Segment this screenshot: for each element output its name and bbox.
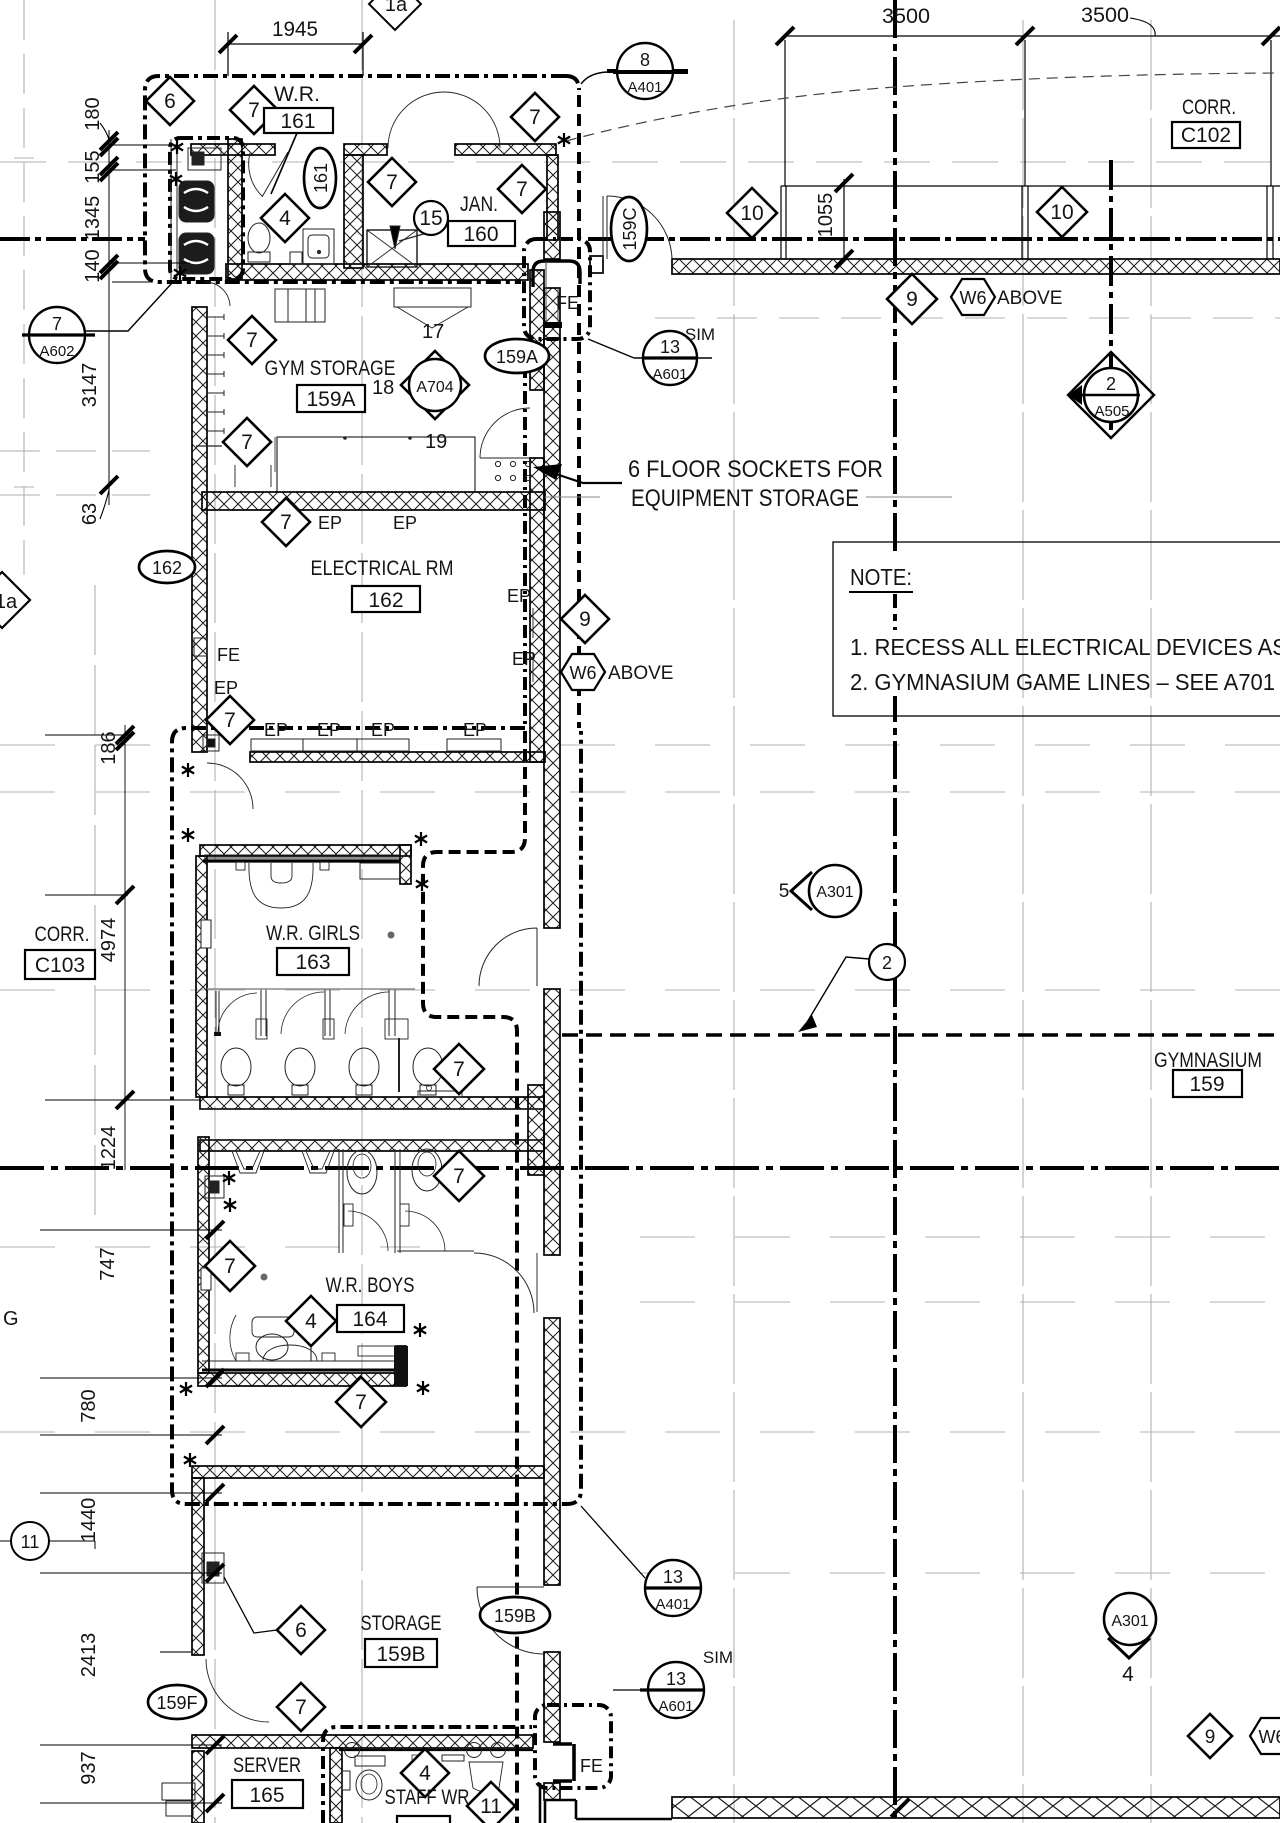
svg-text:7: 7 [248,99,260,122]
svg-text:63: 63 [79,503,101,525]
svg-text:13: 13 [666,1669,686,1689]
svg-text:CORR.: CORR. [35,923,90,946]
svg-text:159A: 159A [306,388,355,411]
svg-text:186: 186 [98,731,120,764]
svg-text:1945: 1945 [272,18,318,41]
svg-text:CORR.: CORR. [1182,96,1236,119]
svg-text:937: 937 [78,1751,100,1784]
svg-text:JAN.: JAN. [460,193,498,216]
svg-text:C102: C102 [1181,124,1231,147]
svg-text:7: 7 [295,1696,307,1719]
svg-text:3500: 3500 [1081,4,1129,27]
svg-text:13: 13 [660,337,680,357]
svg-text:W.R. BOYS: W.R. BOYS [326,1274,415,1297]
svg-text:9: 9 [906,288,918,311]
svg-text:EP: EP [371,720,395,740]
svg-text:2: 2 [882,953,892,973]
svg-text:164: 164 [352,1308,387,1331]
svg-text:W6: W6 [570,663,597,683]
svg-text:180: 180 [82,97,104,130]
svg-text:7: 7 [280,511,292,534]
svg-text:C103: C103 [35,954,85,977]
svg-text:8: 8 [640,50,650,70]
svg-text:EP: EP [512,649,536,669]
svg-text:7: 7 [453,1165,465,1188]
svg-text:SIM: SIM [685,325,715,344]
svg-text:EP: EP [393,513,417,533]
svg-text:6 FLOOR SOCKETS FOR: 6 FLOOR SOCKETS FOR [628,456,883,483]
svg-text:FE: FE [217,645,240,665]
svg-text:SERVER: SERVER [233,1754,301,1777]
svg-text:EP: EP [317,720,341,740]
svg-text:W.R. GIRLS: W.R. GIRLS [266,922,360,945]
svg-text:EP: EP [264,720,288,740]
svg-text:9: 9 [1205,1727,1216,1748]
svg-text:7: 7 [246,329,258,352]
svg-text:7: 7 [453,1058,465,1081]
svg-text:A301: A301 [816,884,853,901]
svg-text:W6: W6 [960,288,987,308]
svg-text:1a: 1a [385,0,408,16]
svg-text:163: 163 [295,951,330,974]
svg-text:1. RECESS ALL ELECTRICAL DEVIC: 1. RECESS ALL ELECTRICAL DEVICES AS [850,634,1280,660]
svg-text:7: 7 [516,178,528,201]
svg-text:13: 13 [663,1567,683,1587]
svg-text:18: 18 [372,377,394,399]
svg-text:6: 6 [295,1619,307,1642]
svg-text:1055: 1055 [815,193,837,238]
svg-text:160: 160 [463,223,498,246]
svg-text:FE: FE [556,293,579,313]
svg-text:7: 7 [52,314,62,334]
svg-text:5: 5 [779,881,790,902]
svg-text:ABOVE: ABOVE [997,288,1062,309]
svg-text:3500: 3500 [882,5,930,28]
svg-text:159F: 159F [156,1693,197,1713]
svg-text:A401: A401 [655,1596,690,1613]
svg-text:747: 747 [97,1247,119,1280]
svg-text:4: 4 [419,1762,431,1785]
svg-text:STAFF WR: STAFF WR [385,1786,470,1809]
svg-text:W6: W6 [1259,1727,1280,1747]
svg-text:162: 162 [368,589,403,612]
svg-text:159B: 159B [376,1643,425,1666]
svg-text:11: 11 [480,1795,502,1818]
svg-text:6: 6 [164,90,176,113]
svg-text:159A: 159A [496,347,538,367]
svg-text:4974: 4974 [98,918,120,963]
svg-text:140: 140 [82,249,104,282]
svg-text:EQUIPMENT STORAGE: EQUIPMENT STORAGE [631,485,859,512]
svg-text:1345: 1345 [82,196,104,241]
svg-text:159: 159 [1189,1073,1224,1096]
svg-text:STORAGE: STORAGE [361,1612,442,1635]
svg-text:7: 7 [355,1391,367,1414]
svg-text:7: 7 [224,709,236,732]
svg-text:GYMNASIUM: GYMNASIUM [1154,1049,1262,1072]
svg-text:161: 161 [280,110,315,133]
svg-text:ELECTRICAL RM: ELECTRICAL RM [311,557,454,580]
svg-text:FE: FE [580,1756,603,1776]
svg-text:NOTE:: NOTE: [850,564,912,590]
svg-text:1a: 1a [0,591,18,613]
svg-text:4: 4 [305,1310,317,1333]
svg-text:159C: 159C [620,207,640,250]
svg-text:161: 161 [311,163,331,193]
svg-text:SIM: SIM [703,1648,733,1667]
svg-text:9: 9 [579,608,591,631]
svg-text:1224: 1224 [98,1126,120,1171]
svg-text:A602: A602 [39,343,74,360]
svg-text:19: 19 [425,431,447,453]
svg-text:EP: EP [507,586,531,606]
svg-text:G: G [3,1308,19,1330]
svg-text:10: 10 [1050,201,1073,224]
svg-text:3147: 3147 [79,363,101,408]
svg-text:165: 165 [249,1784,284,1807]
svg-text:A301: A301 [1111,1613,1148,1630]
svg-text:A401: A401 [627,79,662,96]
svg-text:7: 7 [241,431,253,454]
svg-text:11: 11 [21,1532,40,1552]
svg-text:W.R.: W.R. [274,83,320,106]
svg-text:2413: 2413 [78,1633,100,1678]
svg-text:A601: A601 [652,366,687,383]
svg-text:10: 10 [740,202,763,225]
svg-text:17: 17 [422,321,444,343]
svg-text:EP: EP [318,513,342,533]
svg-text:2. GYMNASIUM GAME LINES – SEE: 2. GYMNASIUM GAME LINES – SEE A701 [850,669,1275,695]
svg-text:ABOVE: ABOVE [608,663,673,684]
svg-text:159B: 159B [494,1606,536,1626]
svg-text:A505: A505 [1094,403,1129,420]
svg-text:780: 780 [78,1389,100,1422]
svg-text:4: 4 [1122,1663,1134,1686]
svg-text:4: 4 [279,207,291,230]
svg-text:7: 7 [529,106,541,129]
svg-text:2: 2 [1106,374,1116,394]
svg-text:155: 155 [82,150,104,183]
svg-text:7: 7 [386,171,398,194]
svg-text:15: 15 [419,207,442,230]
svg-text:162: 162 [152,558,182,578]
svg-text:A704: A704 [416,379,453,396]
svg-text:1440: 1440 [78,1498,100,1543]
svg-text:A601: A601 [658,1698,693,1715]
svg-text:EP: EP [463,720,487,740]
svg-text:7: 7 [224,1255,236,1278]
svg-text:EP: EP [214,678,238,698]
